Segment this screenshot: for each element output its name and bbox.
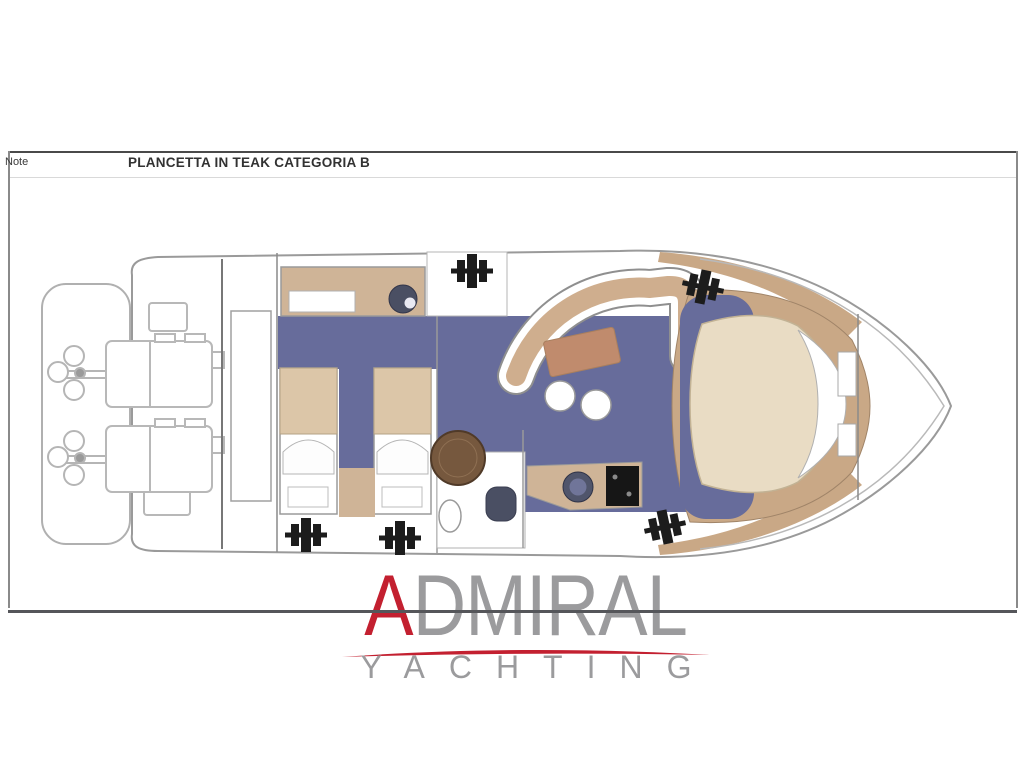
bed-right-blanket <box>374 368 431 434</box>
engine-starboard <box>106 426 212 492</box>
bowcabin-locker-bottom <box>838 424 856 456</box>
midcabin-step <box>339 468 375 517</box>
prop-blade <box>64 380 84 400</box>
engine-detail <box>155 334 175 342</box>
scanned-yacht-plan-page: Note PLANCETTA IN TEAK CATEGORIA B <box>0 0 1024 768</box>
toilet <box>439 500 461 532</box>
prop-hub <box>75 368 85 378</box>
galley-sink-bowl <box>570 479 587 496</box>
prop-blade <box>48 447 68 467</box>
engine-detail <box>185 334 205 342</box>
logo-wordmark: ADMIRAL <box>14 563 1024 649</box>
midcabin-washbasin-bowl <box>405 298 416 309</box>
engine-detail <box>155 419 175 427</box>
logo-letter-a: A <box>365 558 413 654</box>
logo-letters-rest: DMIRAL <box>413 558 687 654</box>
bowcabin-locker-top <box>838 352 856 396</box>
prop-blade <box>64 465 84 485</box>
engine-port <box>106 341 212 407</box>
midcabin-carpet-aisle <box>339 316 375 469</box>
stove-burner <box>613 475 618 480</box>
prop-blade <box>64 431 84 451</box>
logo-subtitle: YACHTING <box>14 651 1024 683</box>
head-sink-unit <box>486 487 516 521</box>
stove-burner <box>627 492 632 497</box>
prop-blade <box>64 346 84 366</box>
logo-subtitle-text: YACHTING <box>361 649 716 685</box>
bed-right-foot <box>382 487 422 507</box>
logo-wordmark-text: ADMIRAL <box>365 563 688 649</box>
galley-stove <box>606 466 639 506</box>
stool-1 <box>545 381 575 411</box>
bed-left-blanket <box>280 368 337 434</box>
stool-2 <box>581 390 611 420</box>
midcabin-cabinet-inset <box>289 291 355 312</box>
engine-room-box-top <box>149 303 187 331</box>
logo-strikethrough-line <box>8 610 1017 613</box>
bed-left-foot <box>288 487 328 507</box>
cockpit-bench <box>231 311 271 501</box>
engine-detail <box>185 419 205 427</box>
prop-blade <box>48 362 68 382</box>
swim-platform <box>42 284 130 544</box>
prop-hub <box>75 453 85 463</box>
